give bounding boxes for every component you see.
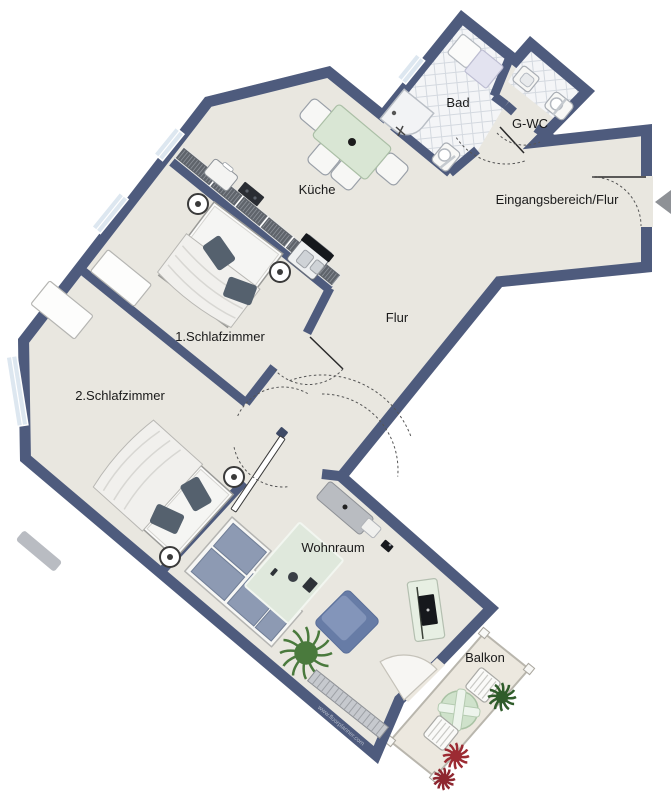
svg-text:Eingangsbereich/Flur: Eingangsbereich/Flur bbox=[496, 192, 620, 207]
svg-text:Flur: Flur bbox=[386, 310, 409, 325]
svg-text:1.Schlafzimmer: 1.Schlafzimmer bbox=[175, 329, 265, 344]
svg-text:2.Schlafzimmer: 2.Schlafzimmer bbox=[75, 388, 165, 403]
svg-text:G-WC: G-WC bbox=[512, 116, 548, 131]
svg-text:Balkon: Balkon bbox=[465, 650, 505, 665]
svg-text:Bad: Bad bbox=[446, 95, 469, 110]
svg-text:Wohnraum: Wohnraum bbox=[301, 540, 364, 555]
svg-text:Küche: Küche bbox=[299, 182, 336, 197]
